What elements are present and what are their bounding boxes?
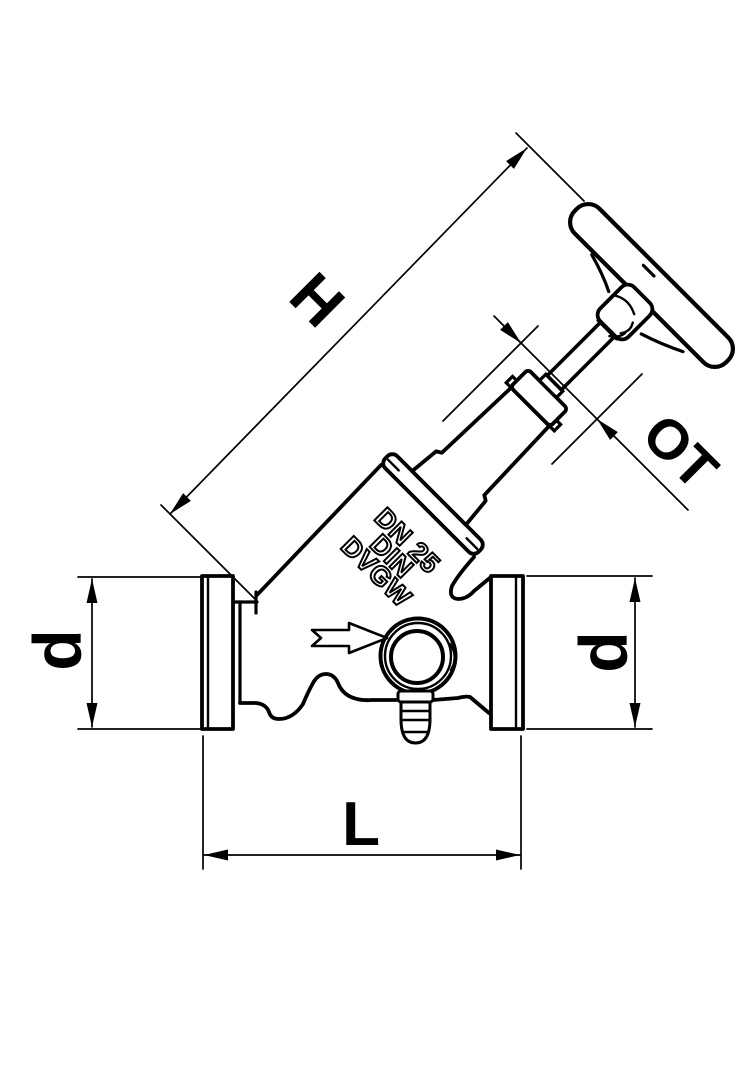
drain-plug-collar — [398, 691, 433, 702]
d-left-label: d — [19, 629, 95, 671]
right-union-end — [491, 576, 523, 729]
dimension-d-right: d — [527, 576, 652, 729]
ot-label: OT — [631, 402, 731, 502]
boss-inner-ring — [391, 631, 443, 683]
body-bottom-profile-right — [433, 697, 489, 713]
body-bottom-profile-left — [240, 674, 396, 719]
dimension-l: L — [203, 736, 521, 869]
body-right-shoulder — [451, 557, 491, 599]
l-arrowhead-left — [204, 850, 228, 861]
left-union-end — [202, 576, 233, 729]
d-right-arrowhead-top — [630, 578, 641, 602]
d-left-arrowhead-top — [87, 579, 98, 603]
h-label: H — [276, 260, 356, 340]
dimension-h: H — [161, 133, 584, 601]
d-right-arrowhead-bottom — [630, 703, 641, 727]
flow-direction-arrow-icon — [312, 623, 387, 653]
dimension-d-left: d — [19, 577, 201, 729]
valve-technical-drawing-page: DN 25 DIN DVGW H OT d d — [0, 0, 756, 1080]
l-label: L — [342, 790, 380, 859]
d-right-label: d — [565, 631, 641, 673]
boss-and-plug — [312, 619, 456, 744]
d-left-arrowhead-bottom — [87, 703, 98, 727]
valve-drawing-canvas: DN 25 DIN DVGW H OT d d — [0, 0, 756, 1080]
drain-plug — [401, 702, 430, 743]
l-arrowhead-right — [496, 850, 520, 861]
h-extension-line-top — [516, 133, 584, 201]
